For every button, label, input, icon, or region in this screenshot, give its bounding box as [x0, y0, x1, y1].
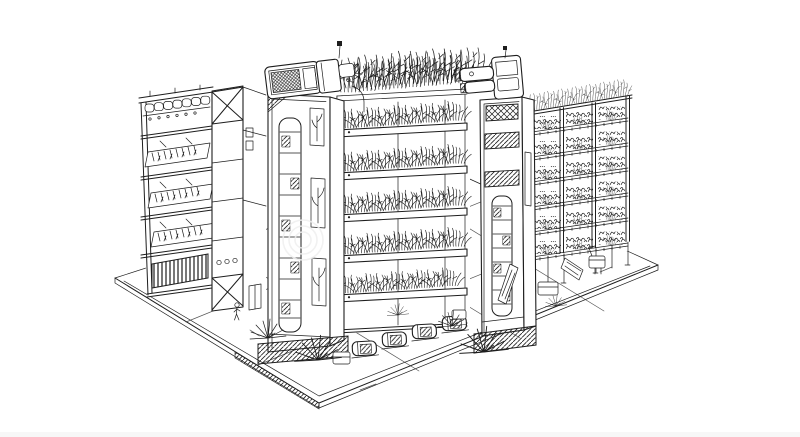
machine1-antenna: [339, 46, 340, 58]
left-elevator-tower: [258, 94, 348, 364]
porthole: [225, 259, 229, 263]
corner-column: [212, 87, 243, 311]
cart: [381, 332, 409, 349]
rooftop-machine-right: [454, 46, 524, 99]
left-building-fill: [139, 86, 266, 348]
paper-edge-strip: [0, 432, 800, 437]
tower2-right-face: [522, 97, 536, 330]
bin: [452, 310, 466, 319]
porthole: [233, 258, 237, 262]
right-elevator-tower: [474, 97, 536, 353]
cart: [351, 341, 379, 358]
vent-band: [485, 132, 519, 149]
tower1-plant-windows: [310, 108, 326, 306]
tower1-right-face: [330, 97, 344, 346]
storage-box: [538, 282, 558, 295]
lattice-window: [486, 104, 518, 121]
porthole: [217, 260, 221, 264]
service-robot: [589, 256, 605, 268]
vent-band: [485, 170, 519, 187]
cart: [411, 324, 439, 341]
vertical-farm-sketch: Black-and-white ink sketch of a futurist…: [0, 0, 800, 437]
machine2-antenna-tip: [503, 46, 507, 50]
machine1-antenna-tip: [337, 41, 342, 46]
machine1-motor-unit: [316, 56, 362, 93]
machine1-grille-box: [264, 61, 321, 99]
illustration-stage: Black-and-white ink sketch of a futurist…: [0, 0, 800, 437]
left-shelf-building: [139, 85, 266, 348]
machine2-body: [491, 55, 524, 99]
